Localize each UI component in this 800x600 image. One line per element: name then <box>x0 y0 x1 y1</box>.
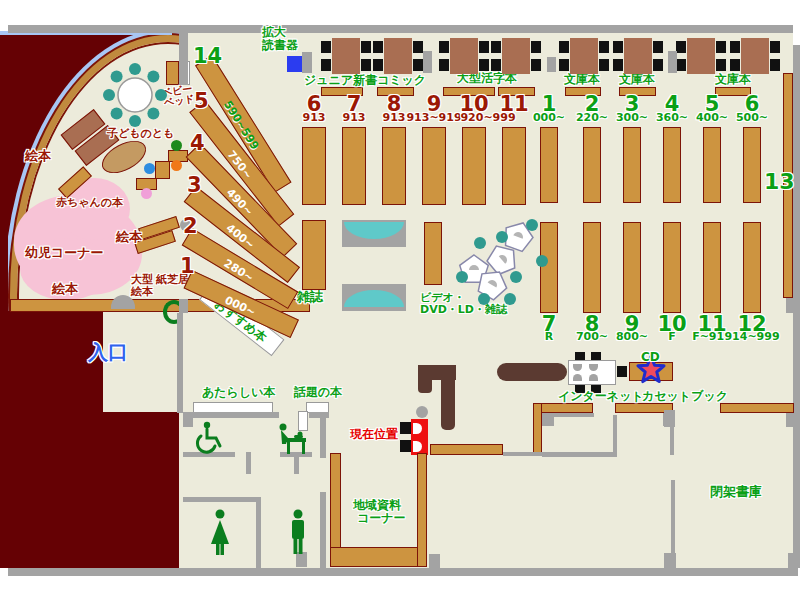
fan-shelf-number: 3 <box>187 174 202 196</box>
bunko-label-3: 文庫本 <box>715 73 751 86</box>
study-table-chair <box>413 59 423 71</box>
study-table-chair <box>361 41 371 53</box>
bottom-wall <box>8 568 798 576</box>
study-table-chair <box>321 59 331 71</box>
study-table <box>332 38 360 74</box>
study-table-chair <box>770 41 780 53</box>
study-table-chair <box>413 41 423 53</box>
internet-pc-4 <box>589 374 598 381</box>
stack-shelf <box>422 127 446 205</box>
current-location-label: 現在位置 <box>350 428 398 441</box>
fan-shelf-number: 2 <box>183 215 198 237</box>
internet-l-shelf-leg <box>533 403 542 455</box>
woman-icon <box>206 508 234 558</box>
fan-shelf-number: 14 <box>193 45 222 67</box>
study-table-chair <box>613 59 623 71</box>
entrance-label: 入口 <box>88 342 128 363</box>
stack-shelf <box>583 127 601 203</box>
magnifier-label-1: 拡大 <box>262 26 286 39</box>
wall-pillar <box>547 57 556 72</box>
baby-change-icon <box>276 420 310 458</box>
toilet-wall-divider <box>256 497 261 568</box>
stack-shelf <box>703 127 721 203</box>
stack-shelf <box>583 222 601 313</box>
fan-shelf-number: 5 <box>194 90 209 112</box>
stack-shelf <box>703 222 721 313</box>
stack-shelf <box>663 127 681 203</box>
copier-tray-2 <box>400 440 411 452</box>
man-icon <box>284 508 312 558</box>
ehon-bottom-label: 絵本 <box>52 282 78 296</box>
stack-shelf <box>302 220 326 290</box>
local-docs-shelf-right <box>417 453 427 567</box>
wall-pillar <box>423 51 432 73</box>
toddler-corner-label: 幼児コーナー <box>25 246 104 260</box>
study-table <box>570 38 598 74</box>
study-table-chair <box>730 59 740 71</box>
closed-stacks-shelf <box>720 403 794 413</box>
pillar-right-lower <box>788 553 798 568</box>
study-table-chair <box>491 59 501 71</box>
service-counter-left-leg <box>418 365 432 393</box>
internet-pc-3 <box>573 374 582 381</box>
wall-internet-shadow <box>542 413 554 426</box>
study-table-chair <box>373 59 383 71</box>
internet-l-shelf-top <box>533 403 593 413</box>
study-table <box>450 38 478 74</box>
study-table-chair <box>676 59 686 71</box>
stack-shelf <box>623 222 641 313</box>
toilet-wall-stub-1 <box>246 452 251 474</box>
copier-person <box>416 406 428 418</box>
study-table-chair <box>599 41 609 53</box>
stack-shelf <box>342 127 366 205</box>
av-pentagon-tables <box>450 215 565 310</box>
closed-stacks-pillar-bottom <box>664 553 676 568</box>
study-table-chair <box>613 41 623 53</box>
large-picture-label-2: 絵本 <box>131 286 153 298</box>
study-table-chair <box>716 41 726 53</box>
gate-pillar <box>179 299 188 313</box>
study-table-chair <box>439 59 449 71</box>
ehon-top-label: 絵本 <box>25 149 51 163</box>
junior-shinsho-label: ジュニア新書 <box>304 74 377 87</box>
toilet-wall-mid-3 <box>183 497 261 502</box>
wall-pillar <box>179 28 188 85</box>
cd-label: CD <box>641 351 660 364</box>
stack-shelf <box>424 222 442 285</box>
stack-shelf <box>502 127 526 205</box>
stack-shelf <box>743 127 761 203</box>
closed-stacks-wall-upper <box>670 427 674 455</box>
stack-shelf <box>623 127 641 203</box>
wall-internet-right <box>613 415 617 455</box>
study-table-chair <box>730 41 740 53</box>
study-table-chair <box>491 41 501 53</box>
study-table-chair <box>479 59 489 71</box>
pillar-right-mid <box>786 298 799 313</box>
ehon-mid-label: 絵本 <box>116 230 142 244</box>
top-wall <box>8 25 793 33</box>
dot-pink <box>141 188 152 199</box>
stack-shelf <box>663 222 681 313</box>
study-table-chair <box>559 59 569 71</box>
study-table-chair <box>531 41 541 53</box>
study-table <box>624 38 652 74</box>
closed-stacks-shelf-shadow <box>786 413 796 427</box>
stack-shelf <box>462 127 486 205</box>
study-table <box>687 38 715 74</box>
shelf-13-label: 13 <box>764 170 795 193</box>
study-table <box>502 38 530 74</box>
bunko-label-1: 文庫本 <box>564 73 600 86</box>
library-floor-map: おすすめ本 拡大 読書器 ジュニア新書 コミック 大型活字本 文庫本 文庫本 文… <box>0 0 800 600</box>
toilet-wall-top-1 <box>187 412 279 418</box>
toilet-wall-right-upper <box>320 412 326 458</box>
dot-blue <box>144 163 155 174</box>
stack-shelf <box>382 127 406 205</box>
study-table-chair <box>599 59 609 71</box>
stack-shelf <box>540 127 558 203</box>
study-table <box>741 38 769 74</box>
magazines-label: 雑誌 <box>297 290 323 304</box>
wall-pillar <box>668 51 677 73</box>
baby-books-label: 赤ちゃんの本 <box>56 197 123 209</box>
copier-tray-1 <box>400 422 411 434</box>
step-shelf-2 <box>155 161 170 179</box>
study-table-chair <box>559 41 569 53</box>
local-docs-label-1: 地域資料 <box>353 499 401 512</box>
stack-shelf <box>302 127 326 205</box>
local-docs-label-2: コーナー <box>357 512 406 525</box>
dot-orange <box>171 160 182 171</box>
stack-shelf <box>743 222 761 313</box>
study-table-chair <box>321 41 331 53</box>
toilet-wall-right-lower <box>320 492 326 568</box>
wall-right-of-local-docs <box>503 452 613 456</box>
study-table-chair <box>770 59 780 71</box>
magnifier-label-2: 読書器 <box>262 39 298 52</box>
service-counter-bar <box>497 363 567 381</box>
cassette-label: カセットブック <box>642 390 728 403</box>
topic-books-label: 話題の本 <box>294 386 342 399</box>
wheelchair-icon <box>194 420 230 458</box>
large-picture-label-1: 大型 <box>131 274 153 286</box>
local-docs-pillar <box>429 554 440 568</box>
internet-terminal <box>617 366 627 377</box>
bunko-label-2: 文庫本 <box>619 73 655 86</box>
toilet-pillar-top-left <box>183 412 193 427</box>
comic-label: コミック <box>377 74 426 87</box>
study-table-chair <box>373 41 383 53</box>
service-counter-right-leg <box>441 365 455 430</box>
toilet-wall-top-2 <box>309 412 329 418</box>
study-table <box>384 38 412 74</box>
fan-shelf-number: 4 <box>190 132 205 154</box>
internet-label: インターネット <box>558 390 644 403</box>
closed-stacks-pillar-top <box>664 410 675 427</box>
corridor-wall <box>177 313 183 413</box>
new-books-label: あたらしい本 <box>202 386 275 399</box>
outside-area-below-entrance <box>103 412 179 568</box>
kids-round-table <box>100 62 170 132</box>
shelf-range: 914~999 <box>717 331 787 343</box>
dot-green <box>171 140 182 151</box>
shelf-range: 500~ <box>717 112 787 124</box>
study-table-chair <box>653 59 663 71</box>
fan-shelf-number: 1 <box>180 255 195 277</box>
closed-stacks-label: 閉架書庫 <box>710 485 762 499</box>
magnifier-device <box>287 56 302 72</box>
study-table-chair <box>439 41 449 53</box>
study-table-chair <box>716 59 726 71</box>
study-table-chair <box>653 41 663 53</box>
study-table-chair <box>479 41 489 53</box>
study-table-chair <box>531 59 541 71</box>
local-docs-shelf-bottom <box>330 547 427 567</box>
magnifier-stand <box>302 52 312 73</box>
study-table-chair <box>676 41 686 53</box>
study-table-chair <box>361 59 371 71</box>
shelf-right-of-local-docs <box>430 444 503 455</box>
